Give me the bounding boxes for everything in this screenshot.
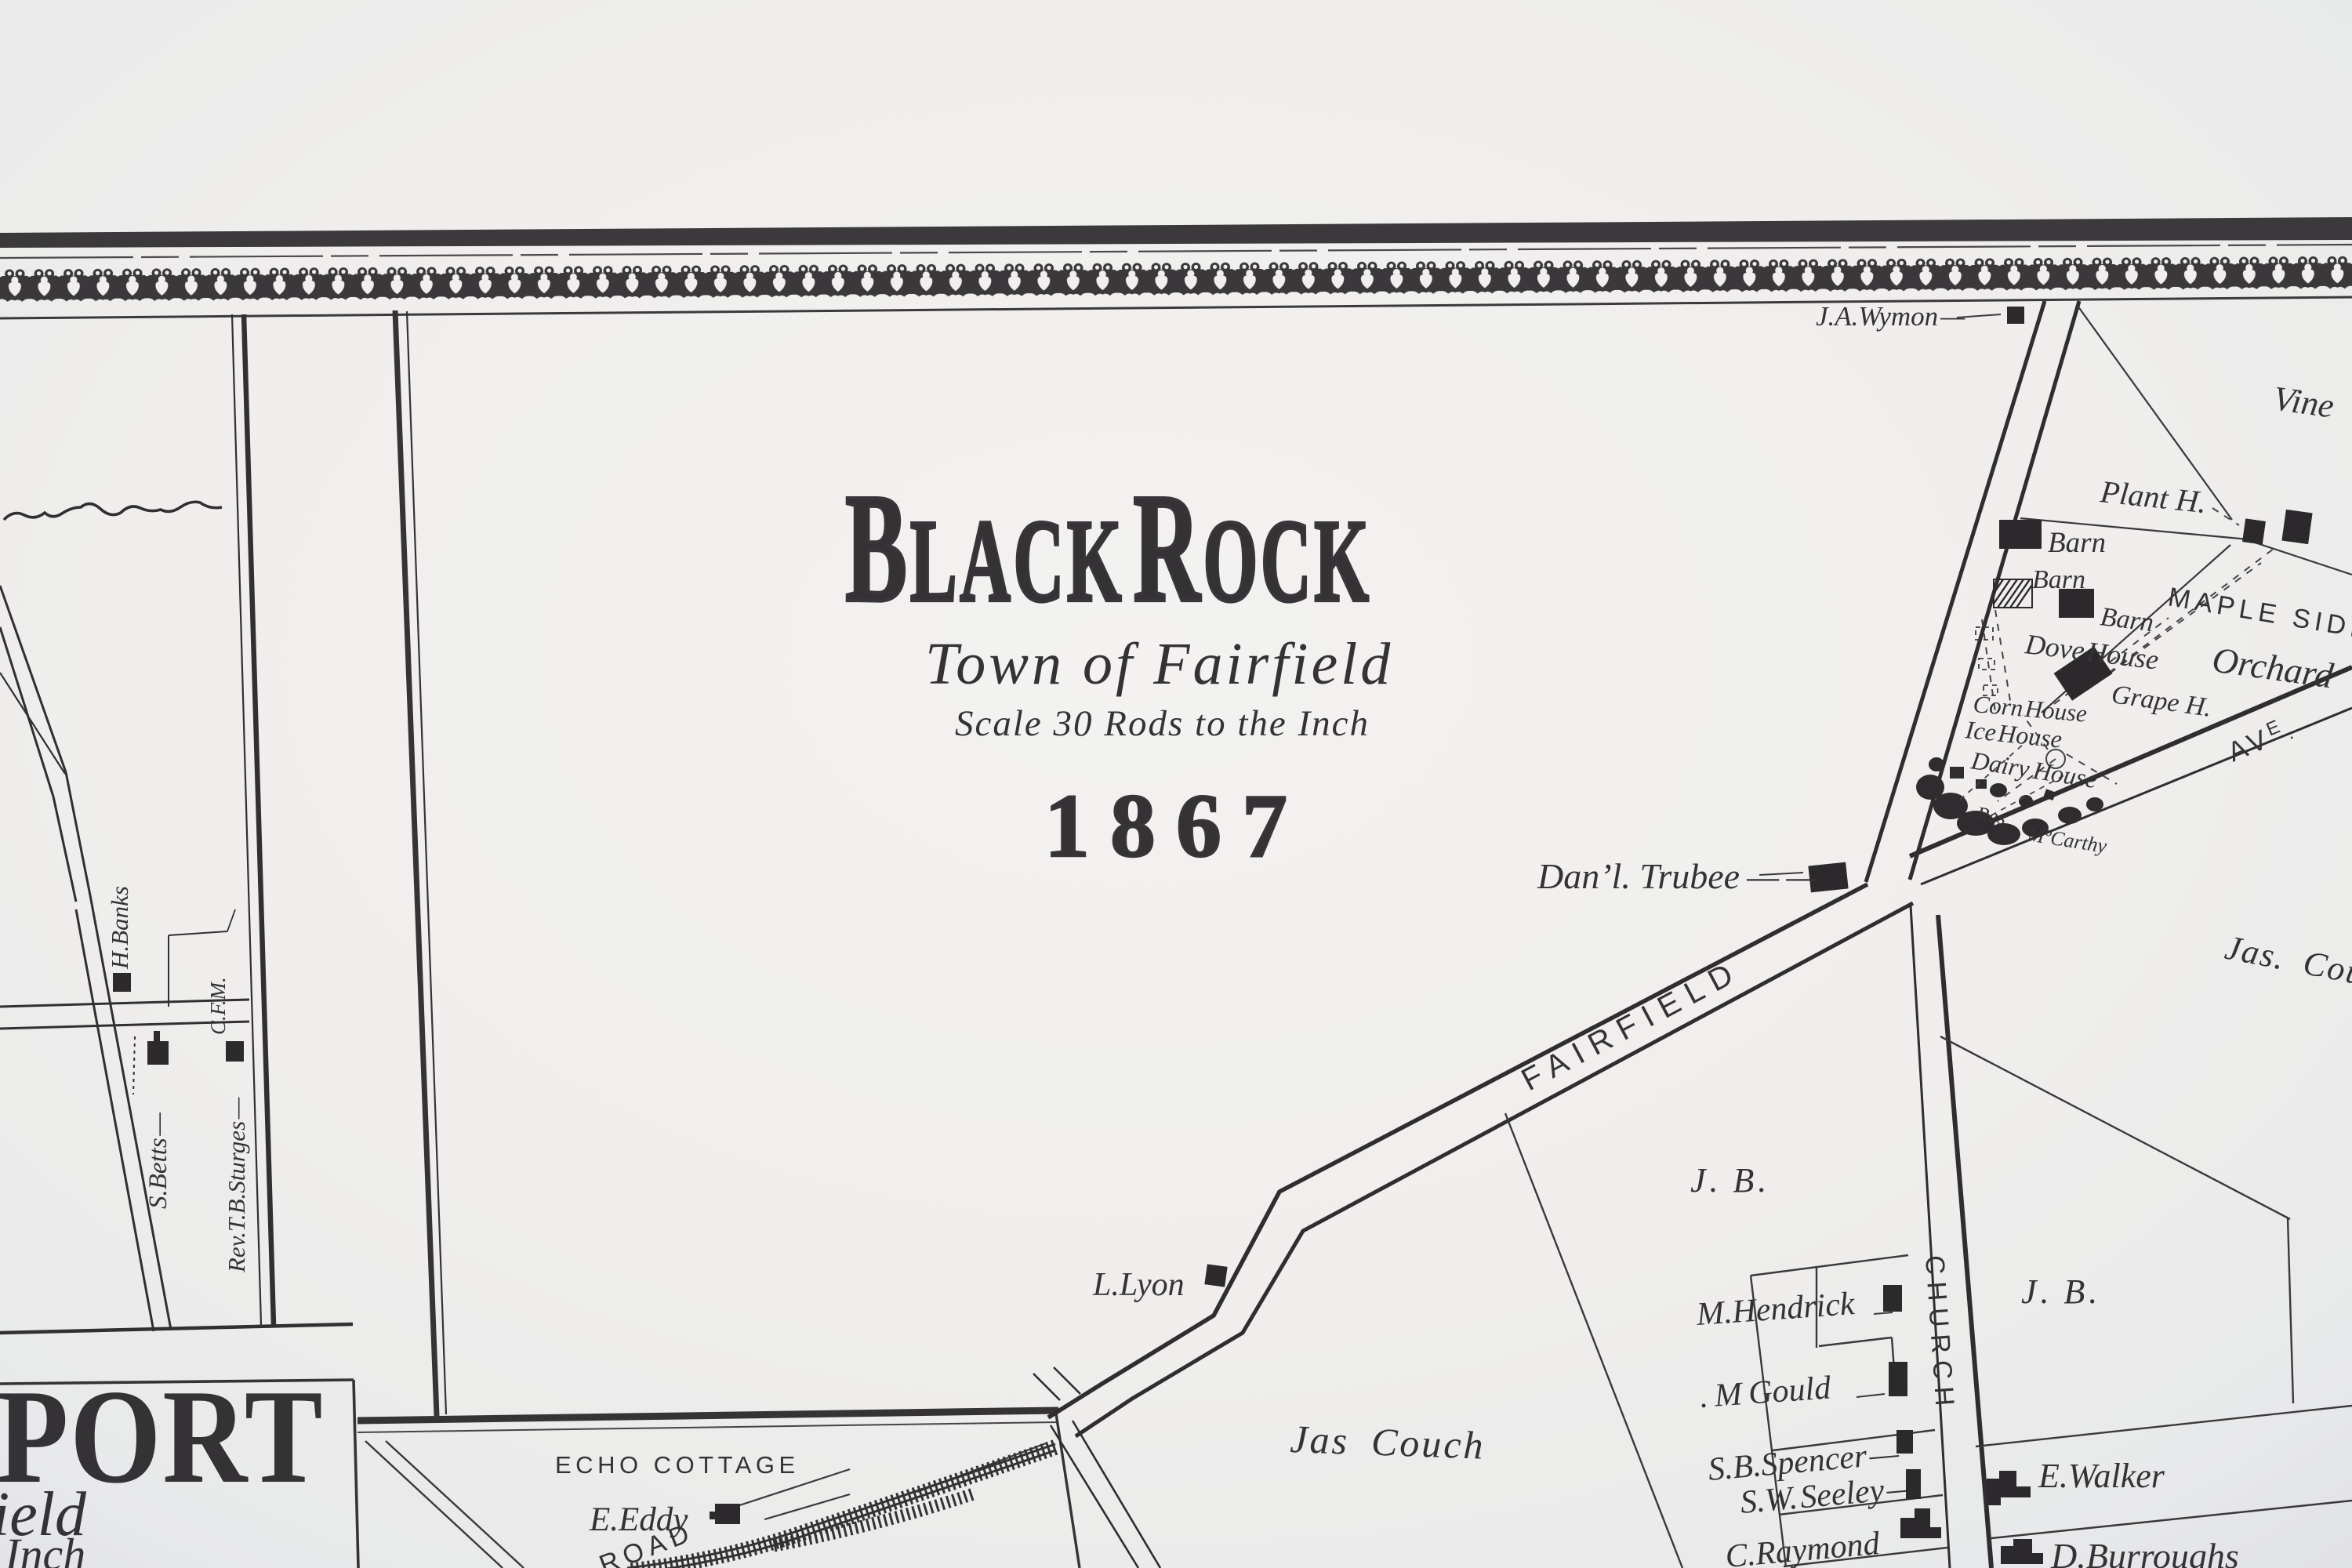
svg-text:1867: 1867 [1044,776,1308,877]
svg-text:Res: Res [1974,802,2008,829]
svg-text:E.Walker: E.Walker [2038,1457,2165,1495]
svg-text:D.Burroughs: D.Burroughs [2050,1536,2239,1568]
svg-text:H.Banks: H.Banks [106,886,133,970]
svg-text:Jas Couch: Jas Couch [1290,1417,1486,1468]
svg-text:Scale 30 Rods to the Inch: Scale 30 Rods to the Inch [955,703,1370,744]
svg-text:J.A.Wymon —: J.A.Wymon — [1816,301,1965,332]
svg-text:J. B.: J. B. [1690,1161,1770,1200]
svg-text:C.F.M.: C.F.M. [206,977,230,1035]
svg-text:Barn: Barn [2032,565,2085,594]
svg-text:S.Betts —: S.Betts — [144,1112,172,1209]
svg-text:e Inch: e Inch [0,1529,85,1568]
svg-text:Town of Fairfield: Town of Fairfield [925,631,1393,697]
svg-text:J. B.: J. B. [2021,1272,2101,1311]
svg-text:L.Lyon: L.Lyon [1092,1267,1185,1303]
svg-text:Barn: Barn [2048,527,2106,559]
svg-text:Rev.T.B.Sturges —: Rev.T.B.Sturges — [223,1097,250,1273]
svg-text:ECHO COTTAGE: ECHO COTTAGE [555,1451,800,1479]
svg-text:Dan’l. Trubee — —: Dan’l. Trubee — — [1537,856,1819,896]
